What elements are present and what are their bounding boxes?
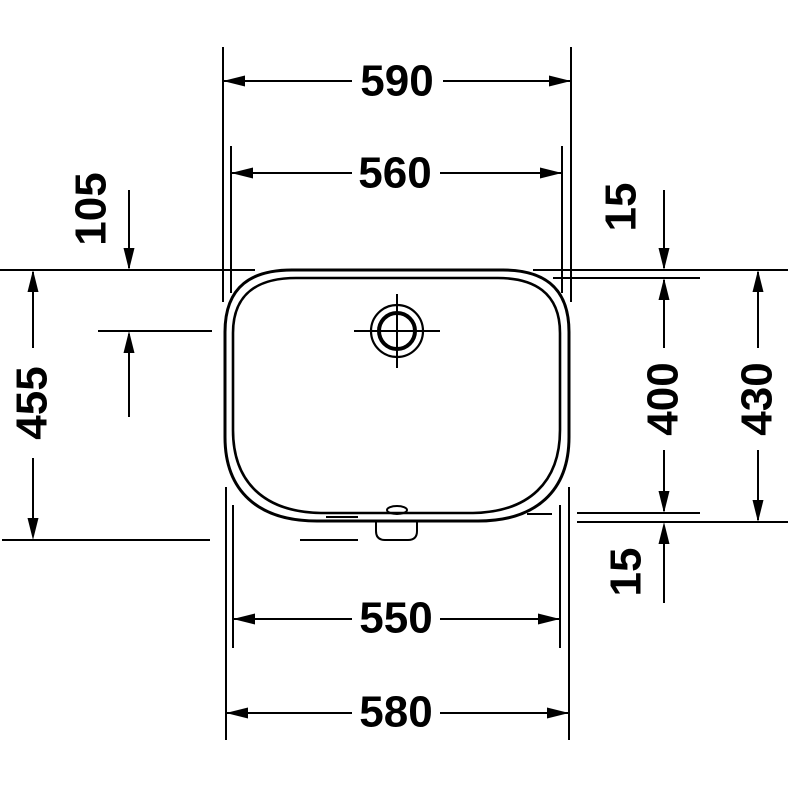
dim-label-400: 400: [639, 362, 688, 435]
dim-label-430: 430: [733, 362, 782, 435]
dimension-590: 590: [223, 57, 571, 106]
arrowhead-right: [540, 168, 562, 179]
dimension-550: 550: [233, 594, 560, 643]
arrowhead-up: [28, 270, 39, 292]
arrowhead-down: [124, 248, 135, 270]
arrowhead-right: [549, 76, 571, 87]
arrowhead-up: [659, 522, 670, 544]
arrowhead-down: [28, 518, 39, 540]
arrowhead-down: [753, 500, 764, 522]
arrowhead-left: [231, 168, 253, 179]
arrowhead-left: [233, 614, 255, 625]
dim-label-105: 105: [67, 172, 116, 245]
arrowhead-up: [753, 270, 764, 292]
dimension-15-top: 15: [597, 183, 670, 270]
arrowhead-up: [124, 331, 135, 353]
dimension-105: 105: [67, 172, 135, 417]
dimension-455: 455: [8, 270, 57, 540]
dimension-560: 560: [231, 149, 562, 198]
basin-dimension-drawing: 590 560 105 455 15 400: [0, 0, 792, 792]
dim-label-580: 580: [359, 688, 432, 737]
technical-drawing-canvas: 590 560 105 455 15 400: [0, 0, 792, 792]
mounting-tab: [376, 521, 417, 540]
dimension-580: 580: [226, 688, 569, 737]
arrowhead-right: [547, 708, 569, 719]
dim-label-15-bottom: 15: [602, 548, 651, 597]
arrowhead-down: [659, 491, 670, 513]
dim-label-455: 455: [8, 366, 57, 439]
tap-hole-group: [354, 294, 440, 368]
dimension-15-bottom: 15: [602, 522, 670, 603]
arrowhead-right: [538, 614, 560, 625]
arrowhead-left: [226, 708, 248, 719]
dim-label-550: 550: [359, 594, 432, 643]
arrowhead-up: [659, 278, 670, 300]
dimension-430: 430: [733, 270, 782, 522]
arrowhead-down: [659, 248, 670, 270]
arrowhead-left: [223, 76, 245, 87]
dim-label-590: 590: [360, 57, 433, 106]
dim-label-15-top: 15: [597, 183, 646, 232]
dim-label-560: 560: [358, 149, 431, 198]
dimension-400: 400: [639, 278, 688, 513]
